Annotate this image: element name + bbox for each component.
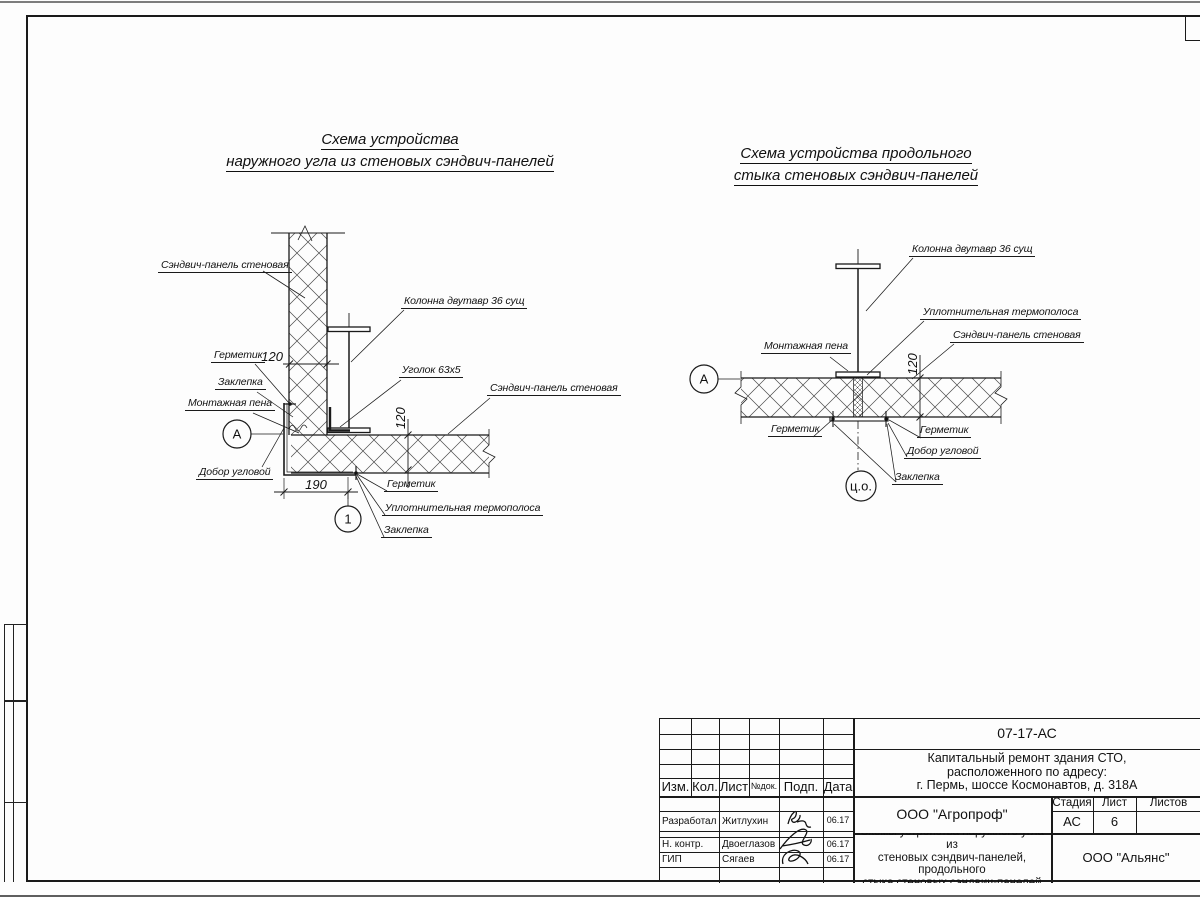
title-block: Изм. Кол. Лист №док. Подп. Дата 07-17-АС… <box>659 718 1200 882</box>
project-line2: расположенного по адресу: <box>947 766 1107 780</box>
cover-trim-strip <box>830 417 888 421</box>
center-marker-text: ц.о. <box>850 479 872 494</box>
dim-120-right: 120 <box>393 407 408 429</box>
col-header-data: Дата <box>823 778 853 796</box>
thermal-strip-joint <box>854 378 863 417</box>
col-header-ndok: №док. <box>749 778 779 796</box>
dim-120: 120 <box>905 353 920 375</box>
column-top-flange <box>836 264 880 269</box>
sheet-title-line1: Схемы устройства наружного угла из <box>853 833 1051 852</box>
rivet-point <box>884 417 887 420</box>
drawing-sheet: { "diagram_left": { "title_line1": "Схем… <box>0 0 1200 900</box>
dim-190: 190 <box>305 477 327 492</box>
label-sealant-top: Герметик <box>211 349 265 363</box>
label-panel-right: Сэндвич-панель стеновая <box>487 382 621 396</box>
row-gip-date: 06.17 <box>823 852 853 867</box>
project-name: Капитальный ремонт здания СТО, расположе… <box>853 749 1200 796</box>
label-foam: Монтажная пена <box>761 340 851 354</box>
label-sealant-right: Герметик <box>917 424 971 438</box>
wall-panel-vertical <box>289 233 327 435</box>
label-thermal-strip: Уплотнительная термополоса <box>382 502 543 516</box>
sheet-title-line2: стеновых сэндвич-панелей, продольного <box>853 852 1051 877</box>
sheet-title-line3: стыка стеновых сэндвич-панелей <box>862 877 1041 883</box>
left-diagram-title: Схема устройства наружного угла из стено… <box>200 131 580 175</box>
label-panel-top: Сэндвич-панель стеновая <box>158 259 292 273</box>
label-thermal-strip: Уплотнительная термополоса <box>920 306 1081 320</box>
label-rivet-bottom: Заклепка <box>381 524 432 538</box>
label-sealant-left: Герметик <box>768 423 822 437</box>
row-ncontr-role: Н. контр. <box>662 837 718 852</box>
stage-label: Стадия <box>1051 796 1093 811</box>
column-top-flange <box>328 327 370 332</box>
row-ncontr-date: 06.17 <box>823 837 853 852</box>
row-developed-date: 06.17 <box>823 811 853 831</box>
project-line3: г. Пермь, шоссе Космонавтов, д. 318А <box>917 779 1138 793</box>
col-header-list: Лист <box>719 778 749 796</box>
doc-number: 07-17-АС <box>853 719 1200 749</box>
org-designer: ООО "Агропроф" <box>853 796 1051 833</box>
label-sealant-bottom: Герметик <box>384 478 438 492</box>
row-gip-name: Сягаев <box>722 852 778 867</box>
label-rivet: Заклепка <box>892 471 943 485</box>
label-angle: Уголок 63х5 <box>399 364 463 378</box>
col-header-podp: Подп. <box>779 778 823 796</box>
project-line1: Капитальный ремонт здания СТО, <box>928 752 1127 766</box>
wall-panel <box>741 378 1001 417</box>
row-gip-role: ГИП <box>662 852 718 867</box>
row-ncontr-name: Двоеглазов <box>722 837 778 852</box>
left-title-line1: Схема устройства <box>321 131 458 150</box>
sheet-title: Схемы устройства наружного угла из стено… <box>853 833 1051 883</box>
org-customer: ООО "Альянс" <box>1051 833 1200 883</box>
col-header-izm: Изм. <box>660 778 691 796</box>
sheets-label: Листов <box>1136 796 1200 811</box>
detail-marker-1-text: 1 <box>344 512 351 527</box>
label-column: Колонна двутавр 36 сущ <box>909 243 1035 257</box>
row-developed-role: Разработал <box>662 811 718 831</box>
label-foam: Монтажная пена <box>185 397 275 411</box>
label-panel: Сэндвич-панель стеновая <box>950 329 1084 343</box>
sheet-value: 6 <box>1093 811 1136 833</box>
row-developed-name: Житлухин <box>722 811 778 831</box>
right-title-line2: стыка стеновых сэндвич-панелей <box>734 167 978 186</box>
label-rivet-top: Заклепка <box>215 376 266 390</box>
node-marker-a-text: А <box>233 427 242 442</box>
right-title-line1: Схема устройства продольного <box>740 145 971 164</box>
col-header-kol: Кол. <box>691 778 719 796</box>
column-bottom-flange <box>836 372 880 377</box>
node-marker-a-text: А <box>700 372 709 387</box>
label-corner-trim: Добор угловой <box>904 445 981 459</box>
right-diagram-title: Схема устройства продольного стыка стено… <box>706 145 1006 189</box>
stage-value: АС <box>1051 811 1093 833</box>
label-column: Колонна двутавр 36 сущ <box>401 295 527 309</box>
sheet-label: Лист <box>1093 796 1136 811</box>
label-corner-trim: Добор угловой <box>196 466 273 480</box>
wall-panel-horizontal <box>291 435 489 473</box>
left-title-line2: наружного угла из стеновых сэндвич-панел… <box>226 153 554 172</box>
right-detail <box>690 249 1007 501</box>
